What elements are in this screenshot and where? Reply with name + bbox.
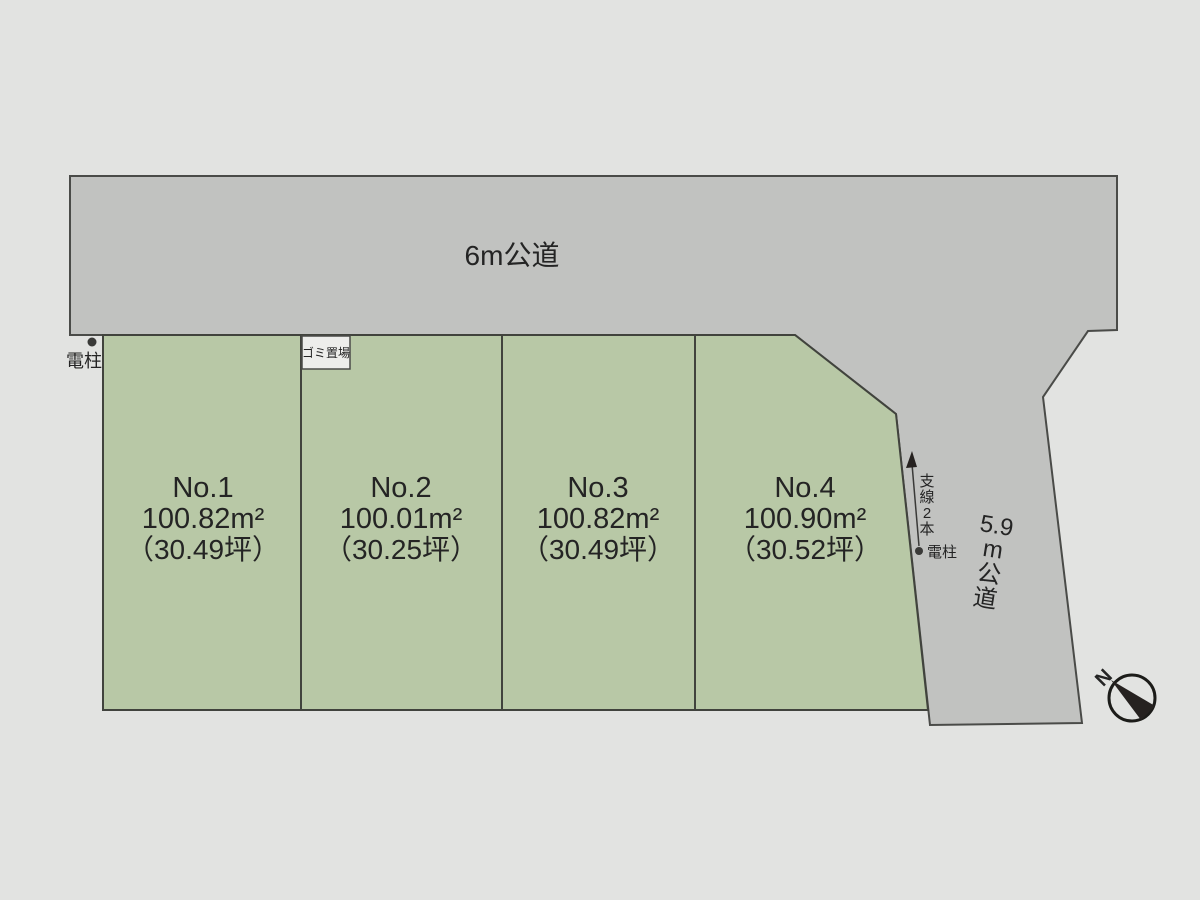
- garbage-station-label: ゴミ置場: [302, 345, 350, 360]
- plot-no4-area: 100.90m²: [744, 503, 867, 535]
- plot-no3-tsubo: （30.49坪）: [521, 534, 675, 565]
- guy-wires-char-2: 線: [919, 489, 934, 506]
- utility-pole-left-label: 電柱: [66, 351, 102, 371]
- guy-wires-char-4: 本: [919, 521, 934, 538]
- plot-no2-name: No.2: [370, 472, 431, 504]
- plot-no4-name: No.4: [774, 472, 835, 504]
- top-road-label: 6m公道: [465, 240, 560, 271]
- plot-no1-name: No.1: [172, 472, 233, 504]
- utility-pole-right-dot-icon: [915, 547, 923, 555]
- site-plan-canvas: 6m公道 No.1 100.82m² （30.49坪） No.2 100.01m…: [0, 0, 1200, 900]
- site-plan: 6m公道 No.1 100.82m² （30.49坪） No.2 100.01m…: [0, 0, 1200, 900]
- utility-pole-right-label: 電柱: [927, 544, 957, 561]
- garbage-station: ゴミ置場: [302, 336, 350, 369]
- guy-wires-char-1: 支: [919, 473, 934, 490]
- plot-no2-area: 100.01m²: [340, 503, 463, 535]
- plot-no1-tsubo: （30.49坪）: [126, 534, 280, 565]
- plot-no3-area: 100.82m²: [537, 503, 660, 535]
- guy-wires-char-3: 2: [923, 505, 931, 522]
- plot-no1-area: 100.82m²: [142, 503, 265, 535]
- utility-pole-left-dot-icon: [88, 338, 97, 347]
- plot-no4-tsubo: （30.52坪）: [728, 534, 882, 565]
- plot-no3-name: No.3: [567, 472, 628, 504]
- plot-no2-tsubo: （30.25坪）: [324, 534, 478, 565]
- side-road-label-part-4: 道: [971, 584, 999, 614]
